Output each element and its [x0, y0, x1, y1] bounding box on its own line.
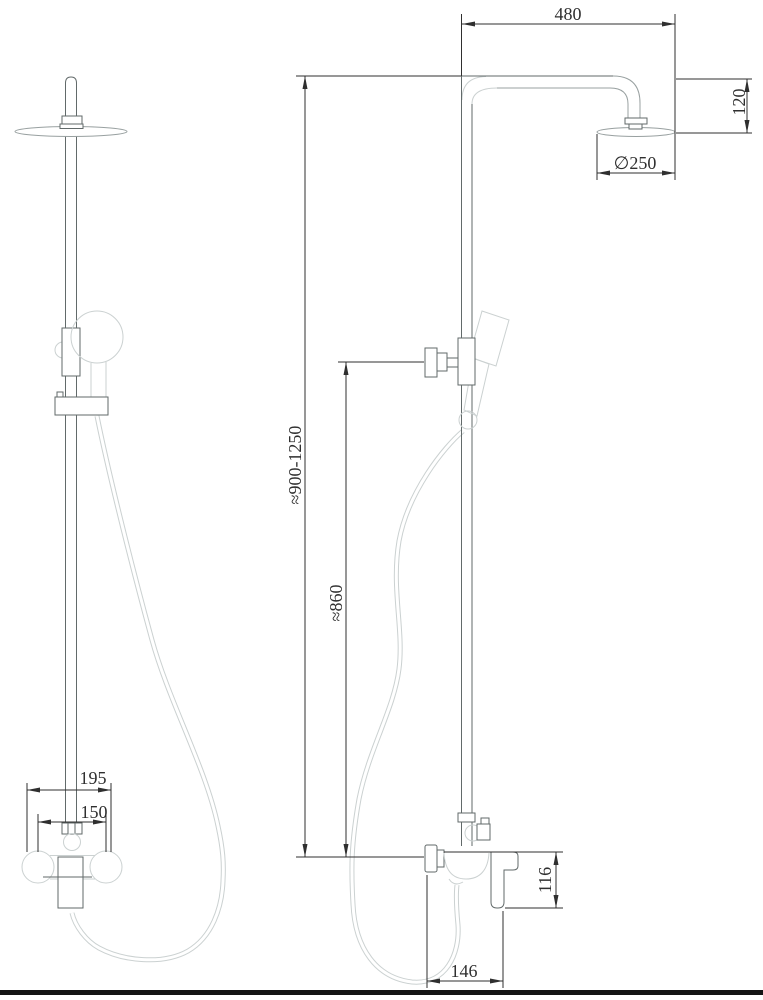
arrow-right	[490, 979, 503, 984]
arrow-left	[27, 788, 40, 793]
ground-line	[0, 990, 763, 995]
arrow-down	[745, 120, 750, 133]
head-inlet-stub-front	[66, 77, 77, 118]
arrow-right	[662, 171, 675, 176]
escutcheon-side	[425, 845, 437, 872]
shower-arm-side	[462, 76, 676, 137]
dim-label-480: 480	[555, 4, 582, 24]
mixer-front	[22, 823, 122, 908]
diverter-tab	[481, 818, 489, 824]
slider-block-side	[458, 338, 475, 385]
bracket-front	[55, 397, 108, 415]
arrow-right	[98, 788, 111, 793]
arrow-up	[554, 852, 559, 865]
arrow-down	[344, 844, 349, 857]
side-view	[352, 76, 675, 982]
arrow-down	[303, 844, 308, 857]
front-view	[15, 77, 223, 960]
mixer-body-spout	[449, 879, 463, 884]
arrow-up	[344, 362, 349, 375]
shower-hose-side	[352, 431, 463, 982]
bracket-stem-b	[447, 358, 458, 367]
arm-bend-inner-right	[610, 88, 628, 104]
dimensions: 480 120 ∅250 ≈900-1250	[27, 4, 752, 988]
arrow-up	[303, 76, 308, 89]
dim-label-860: ≈860	[326, 585, 346, 622]
escutcheon-left	[22, 851, 54, 883]
mixer-handle-side	[491, 852, 518, 908]
mixer-inlet-nut-side	[458, 813, 475, 822]
arrow-left	[462, 22, 475, 27]
dim-label-116: 116	[535, 867, 555, 893]
dim-label-146: 146	[451, 961, 478, 981]
head-nut-front-upper	[62, 116, 82, 124]
escutcheon-hub-side	[437, 850, 444, 867]
bracket-knob-side	[425, 348, 437, 377]
arm-bend-inner-left	[472, 88, 497, 104]
dim-head-drop: 120	[676, 79, 752, 133]
dim-label-900-1250: ≈900-1250	[285, 426, 305, 505]
dim-head-diameter: ∅250	[597, 134, 675, 180]
dim-label-120: 120	[729, 89, 749, 116]
arm-bend-outer-right	[613, 76, 640, 103]
mixer-body-bowl	[444, 853, 489, 879]
head-nut-side-lower	[629, 124, 642, 129]
dim-label-250: ∅250	[614, 153, 657, 173]
technical-drawing: 480 120 ∅250 ≈900-1250	[0, 0, 763, 1000]
arrow-right	[662, 22, 675, 27]
hose-core	[352, 431, 463, 982]
arrow-down	[554, 895, 559, 908]
arrow-left	[38, 820, 51, 825]
head-nut-front-lower	[60, 124, 83, 129]
dim-label-150: 150	[81, 802, 108, 822]
drawing-sheet: 480 120 ∅250 ≈900-1250	[0, 0, 763, 1000]
arrow-left	[597, 171, 610, 176]
dim-rail-height: ≈860	[326, 362, 424, 857]
head-nut-side-upper	[625, 118, 647, 124]
bracket-tab-front	[57, 392, 63, 397]
dim-label-195: 195	[80, 768, 107, 788]
bracket-stem-a	[437, 353, 447, 371]
mixer-collar-front	[64, 834, 81, 851]
mixer-inlet-nut-front	[62, 823, 82, 834]
diverter-knob	[477, 824, 490, 840]
mixer-handle-front	[58, 857, 83, 908]
